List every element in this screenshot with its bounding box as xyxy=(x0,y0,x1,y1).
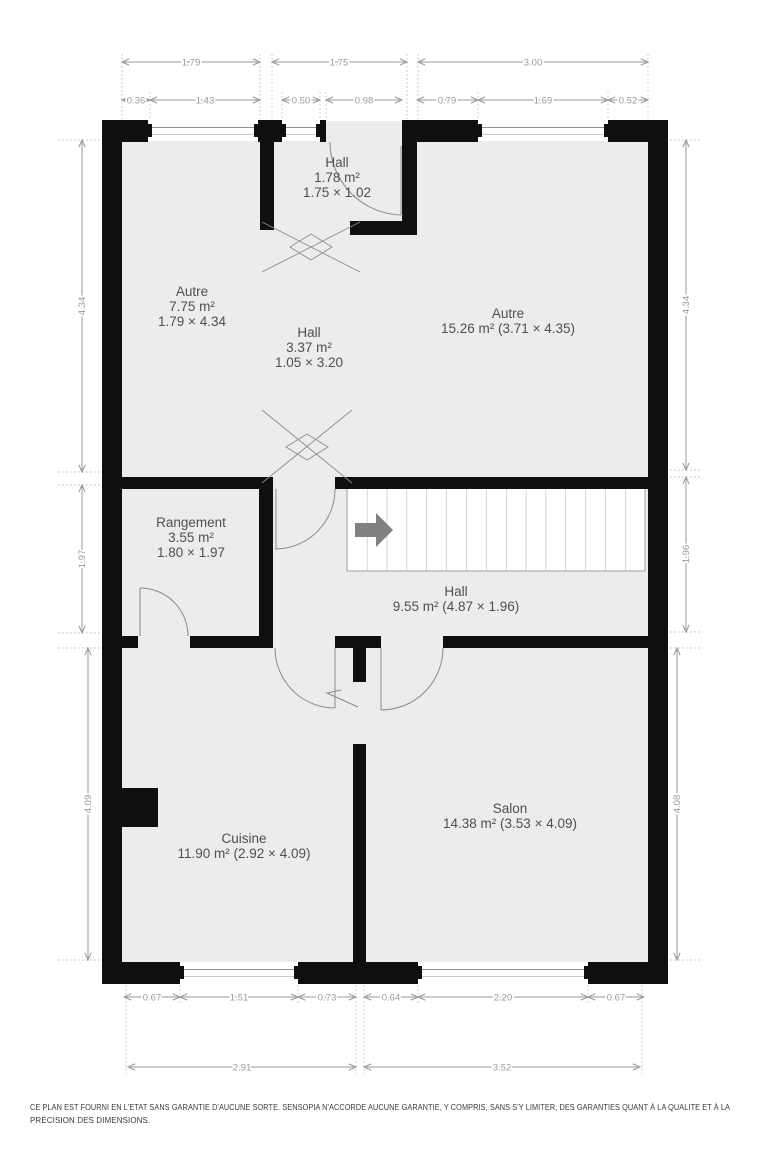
wall-exterior-right xyxy=(648,120,668,984)
wall-bottom-segment xyxy=(298,962,418,984)
room-rangement-name: Rangement xyxy=(156,515,226,530)
dim-label-top2-6: 0.52 xyxy=(619,96,638,107)
dim-label-top2-2: 0.50 xyxy=(292,96,311,107)
dim-label-right-0: 4.34 xyxy=(681,296,692,315)
wall-hall-top-return xyxy=(350,221,417,235)
room-autre-left-name: Autre xyxy=(176,284,208,299)
dim-label-left-0: 4.34 xyxy=(77,297,88,316)
wall-lower-divider-segment xyxy=(443,636,668,648)
dim-label-top1-0: 1.79 xyxy=(182,58,201,69)
room-hall-top-area: 1.78 m² xyxy=(314,170,360,185)
dim-label-top2-4: 0.79 xyxy=(438,96,457,107)
window-top-left xyxy=(148,121,258,141)
wall-top-segment xyxy=(320,120,326,142)
room-rangement-dims: 1.80 × 1.97 xyxy=(157,545,225,560)
wall-hall-top-left-partition xyxy=(260,120,274,230)
wall-mid-divider-left xyxy=(102,477,273,489)
room-autre-right-name: Autre xyxy=(492,306,524,321)
wall-mid-divider-right xyxy=(335,477,668,489)
room-cuisine-area: 11.90 m² (2.92 × 4.09) xyxy=(178,846,311,861)
room-autre-left-dims: 1.79 × 4.34 xyxy=(158,314,226,329)
wall-bottom-segment xyxy=(588,962,668,984)
wall-exterior-left xyxy=(102,120,122,984)
room-rangement-area: 3.55 m² xyxy=(168,530,214,545)
window-top-right xyxy=(478,121,608,141)
dimensions-bottom: 0.67 1.51 0.73 0.64 2.20 0.67 2.91 3.52 xyxy=(124,993,644,1074)
room-hall-stairs-name: Hall xyxy=(444,584,467,599)
room-hall-mid-area: 3.37 m² xyxy=(286,340,332,355)
dim-label-top2-0: 0.36 xyxy=(127,96,146,107)
dim-label-bot2-1: 3.52 xyxy=(493,1063,512,1074)
room-cuisine-name: Cuisine xyxy=(221,831,266,846)
dimensions-top: 1.79 1.75 3.00 0.36 1.43 0.50 0.98 0.79 … xyxy=(122,58,648,107)
dim-label-bot1-4: 2.20 xyxy=(494,993,513,1004)
dim-label-bot1-3: 0.64 xyxy=(382,993,401,1004)
room-hall-mid-dims: 1.05 × 3.20 xyxy=(275,355,343,370)
window-cuisine xyxy=(180,963,298,983)
wall-cuisine-salon-stub xyxy=(353,648,366,682)
dim-label-bot1-0: 0.67 xyxy=(143,993,162,1004)
wall-top-segment xyxy=(608,120,668,142)
dim-label-right-1: 1.96 xyxy=(681,545,692,564)
room-salon-name: Salon xyxy=(493,801,528,816)
room-hall-mid-name: Hall xyxy=(297,325,320,340)
footer-disclaimer: CE PLAN EST FOURNI EN L'ETAT SANS GARANT… xyxy=(30,1103,731,1125)
dim-label-top1-1: 1.75 xyxy=(330,58,349,69)
dim-label-right-2: 4.08 xyxy=(672,795,683,814)
floor-plan-canvas: Hall 1.78 m² 1.75 × 1.02 Autre 7.75 m² 1… xyxy=(0,0,768,1152)
dim-label-top2-3: 0.98 xyxy=(355,96,374,107)
wall-rangement-right xyxy=(259,477,273,648)
wall-bottom-segment xyxy=(102,962,180,984)
room-autre-left-area: 7.75 m² xyxy=(169,299,215,314)
room-hall-top-dims: 1.75 × 1.02 xyxy=(303,185,371,200)
dim-label-bot1-2: 0.73 xyxy=(318,993,337,1004)
staircase xyxy=(347,487,645,571)
room-hall-top-name: Hall xyxy=(325,155,348,170)
dim-label-top1-2: 3.00 xyxy=(524,58,543,69)
window-salon xyxy=(418,963,588,983)
dimensions-left: 4.34 1.97 4.09 xyxy=(77,140,94,960)
entrance-threshold-floor xyxy=(326,121,402,142)
dim-label-top2-1: 1.43 xyxy=(196,96,215,107)
dim-label-bot1-1: 1.51 xyxy=(230,993,249,1004)
wall-lower-divider-segment xyxy=(335,636,381,648)
room-hall-stairs-area: 9.55 m² (4.87 × 1.96) xyxy=(393,599,519,614)
window-hall-top xyxy=(282,121,320,141)
wall-lower-divider-segment xyxy=(190,636,273,648)
wall-lower-divider-segment xyxy=(102,636,138,648)
dim-label-bot1-5: 0.67 xyxy=(607,993,626,1004)
dimensions-right: 4.34 1.96 4.08 xyxy=(672,140,692,960)
room-autre-right-area: 15.26 m² (3.71 × 4.35) xyxy=(441,321,575,336)
dim-label-top2-5: 1.69 xyxy=(534,96,553,107)
footer-disclaimer-line2: PRÉCISION DES DIMENSIONS. xyxy=(30,1116,150,1125)
dim-label-bot2-0: 2.91 xyxy=(233,1063,252,1074)
wall-chimney-protrusion xyxy=(122,788,158,827)
footer-disclaimer-line1: CE PLAN EST FOURNI EN L'ETAT SANS GARANT… xyxy=(30,1103,731,1112)
wall-cuisine-salon-divider xyxy=(353,744,366,962)
wall-top-segment xyxy=(102,120,148,142)
floor-plan-page: Hall 1.78 m² 1.75 × 1.02 Autre 7.75 m² 1… xyxy=(0,0,768,1152)
wall-hall-top-right-partition xyxy=(402,120,417,235)
dim-label-left-2: 4.09 xyxy=(83,795,94,814)
room-salon-area: 14.38 m² (3.53 × 4.09) xyxy=(443,816,577,831)
dim-label-left-1: 1.97 xyxy=(77,550,88,569)
